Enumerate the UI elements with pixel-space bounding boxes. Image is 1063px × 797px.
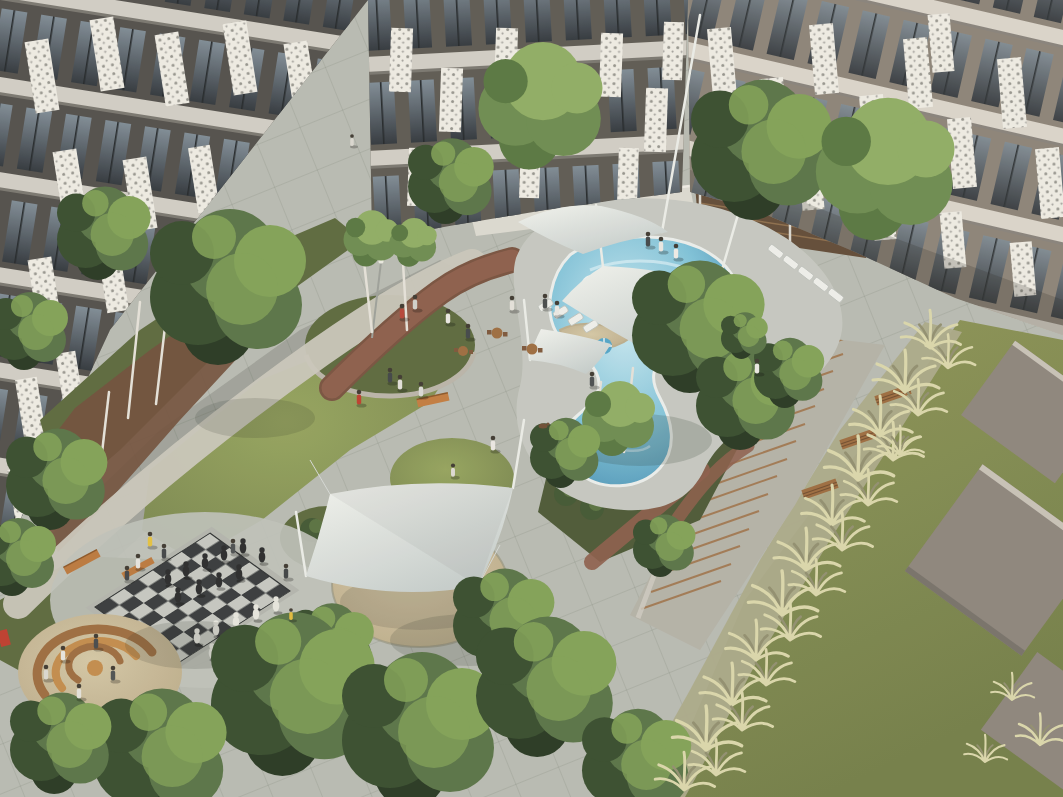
architectural-rendering <box>0 0 1063 797</box>
courtyard-scene <box>0 0 1063 797</box>
light-wash <box>0 0 1063 797</box>
